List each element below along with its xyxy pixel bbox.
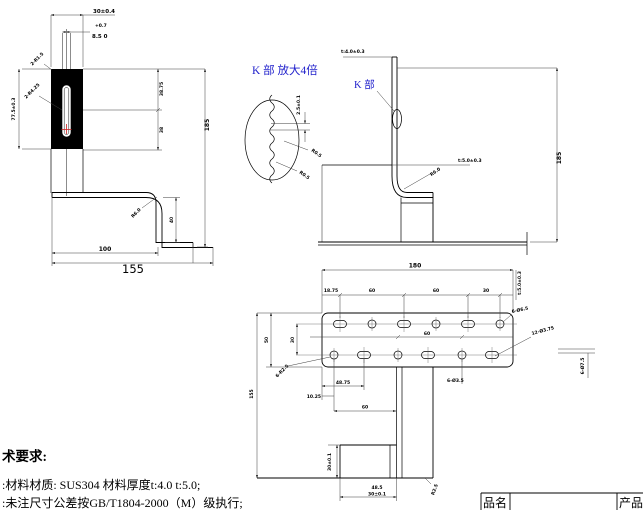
drawing-canvas: 30±0.4 +0.7 8.5 0 2-R1.5 2-R4.25 77.5±0.… xyxy=(0,0,643,510)
detail-circle xyxy=(245,100,299,180)
dim-side-overall-height: 185 xyxy=(556,152,563,165)
label-holes-small: 6-Ø3.5 xyxy=(447,377,464,384)
dim-plan-thickness: t:5.0±0.3 xyxy=(517,271,523,295)
dim-foot-height: 30±0.1 xyxy=(327,453,333,471)
dim-pitch1: 60 xyxy=(369,288,375,294)
dim-leg-offset: 60 xyxy=(362,405,368,411)
title-block-product: 产品 xyxy=(619,496,643,510)
label-holes-all: 12-Ø3.75 xyxy=(531,324,555,337)
detail-view-k: K 部 放大4倍 2.5±0.1 R0.5 R0.5 xyxy=(245,63,323,183)
label-serration-radius-lower: R0.5 xyxy=(298,170,311,181)
dim-row-pitch: 60 xyxy=(424,331,430,337)
dim-slot-width: 8.5 0 xyxy=(92,34,108,40)
title-block: 品名 产品 xyxy=(481,493,643,510)
dim-front-overall-height: 185 xyxy=(204,119,211,132)
dim-seg-upper: 38.75 xyxy=(159,82,165,96)
dim-row2-first: 10.25 xyxy=(307,394,321,400)
dim-foot-width-sup: 48.5 xyxy=(371,485,382,491)
dim-base-overall: 155 xyxy=(122,262,144,276)
dim-pitch2: 60 xyxy=(433,288,439,294)
dim-thickness-top: t:4.0±0.3 xyxy=(341,49,365,55)
label-front-bend-radius: R6.0 xyxy=(130,207,142,219)
label-side-bend-radius: R6.0 xyxy=(429,166,442,177)
dim-offset-last: 30 xyxy=(483,288,489,294)
dim-foot-width: 30±0.1 xyxy=(368,492,386,498)
label-corner-lower: 2-R4.25 xyxy=(23,82,41,100)
label-serration-radius-upper: R0.5 xyxy=(310,148,323,159)
foot-view: 30±0.1 48.5 30±0.1 R2.5 xyxy=(257,367,440,501)
notes-title: 术要求: xyxy=(2,448,47,464)
dim-slot-tolerance: +0.7 xyxy=(95,23,107,29)
side-view: K 部 t:4.0±0.3 t:5.0±0.3 R6.0 185 xyxy=(318,49,563,255)
dim-plan-overall-depth: 155 xyxy=(249,389,255,398)
plan-plate xyxy=(322,313,513,367)
dim-thickness-base: t:5.0±0.3 xyxy=(458,158,482,164)
dim-offset-first: 18.75 xyxy=(324,288,338,294)
dim-step-height: 40 xyxy=(169,217,175,223)
plan-view: 180 18.75 60 60 30 50 30 60 48.75 xyxy=(249,263,595,479)
dim-base-inner: 100 xyxy=(99,246,112,253)
label-foot-corner-radius: R2.5 xyxy=(430,483,440,496)
dim-seg-lower: 38 xyxy=(159,127,165,133)
label-k-section: K 部 xyxy=(354,78,375,91)
dim-row2-offset: 48.75 xyxy=(336,380,350,386)
dim-plan-width: 180 xyxy=(409,263,422,270)
dim-row-gap: 30 xyxy=(290,337,296,343)
detail-title: K 部 放大4倍 xyxy=(252,63,318,77)
label-corner-upper: 2-R1.5 xyxy=(29,51,45,67)
dim-left-height: 77.5±0.3 xyxy=(11,98,17,121)
label-slot-radius: 6-R2.5 xyxy=(274,363,290,379)
dim-serration-pitch: 2.5±0.1 xyxy=(296,95,302,115)
label-holes-edge: 6-Ø7.5 xyxy=(579,358,586,375)
dim-plan-depth: 50 xyxy=(264,337,270,343)
engineering-drawing-sheet: 30±0.4 +0.7 8.5 0 2-R1.5 2-R4.25 77.5±0.… xyxy=(0,0,643,510)
dim-front-width: 30±0.4 xyxy=(93,9,115,15)
title-block-part-name: 品名 xyxy=(483,495,507,510)
label-holes-round: 6-Ø6.5 xyxy=(511,305,529,315)
front-view: 30±0.4 +0.7 8.5 0 2-R1.5 2-R4.25 77.5±0.… xyxy=(11,9,213,276)
technical-notes: 术要求: :材料材质: SUS304 材料厚度t:4.0 t:5.0; :未注尺… xyxy=(2,448,243,510)
serration-profile xyxy=(270,95,275,183)
notes-line-2: :未注尺寸公差按GB/T1804-2000（M）级执行; xyxy=(2,495,243,510)
notes-line-1: :材料材质: SUS304 材料厚度t:4.0 t:5.0; xyxy=(2,477,200,492)
